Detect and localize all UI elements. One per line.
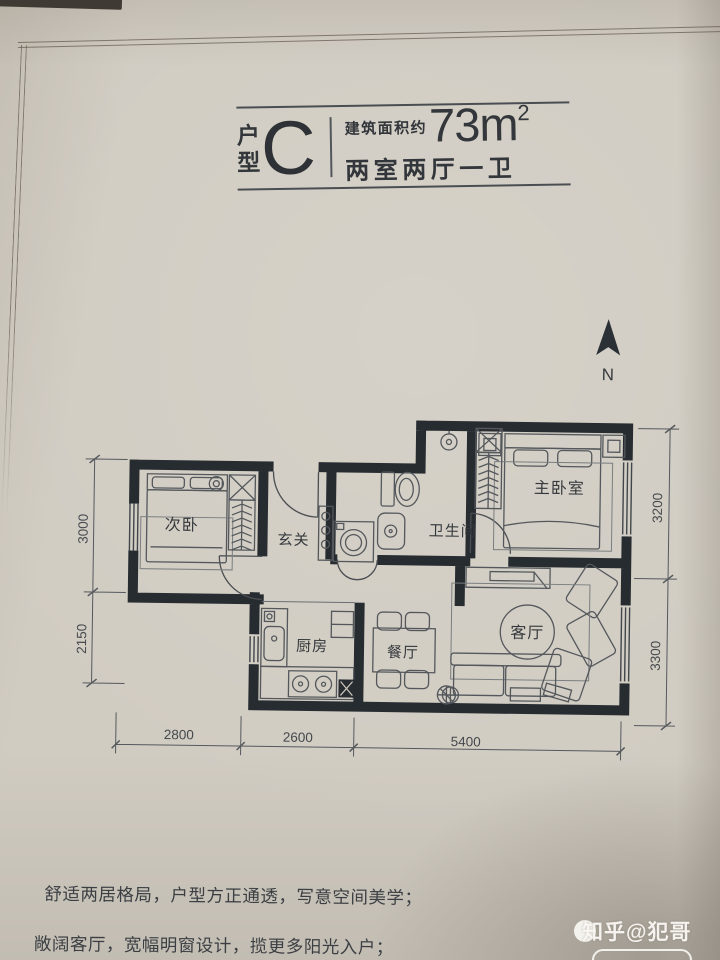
dim-bottom-3: 5400 xyxy=(451,734,481,749)
room-labels: 次卧 玄关 卫生间 主卧室 厨房 餐厅 客厅 xyxy=(163,474,585,664)
side-lamp-icon xyxy=(437,686,455,704)
room-label-foyer: 玄关 xyxy=(277,532,309,549)
stove xyxy=(288,671,336,698)
nightstand-right xyxy=(603,435,625,457)
armchair xyxy=(565,563,619,619)
room-label-bathroom: 卫生间 xyxy=(429,523,477,541)
tv-cabinet xyxy=(466,567,550,588)
room-label-living: 客厅 xyxy=(510,624,544,642)
dim-bottom-1: 2800 xyxy=(164,727,194,742)
watermark-pill xyxy=(592,949,692,960)
room-label-kitchen: 厨房 xyxy=(296,638,328,655)
north-label: N xyxy=(602,365,615,384)
dim-right-upper: 3200 xyxy=(650,493,665,523)
bathroom-sink xyxy=(377,513,405,549)
dim-right-lower: 3300 xyxy=(648,641,663,671)
washing-machine xyxy=(333,521,374,562)
watermark-text: 知乎@犯哥 xyxy=(582,916,691,946)
marketing-notes: 舒适两居格局，户型方正通透，写意空间美学； 敞阔客厅，宽幅明窗设计，揽更多阳光入… xyxy=(43,881,644,960)
floor-drain xyxy=(338,679,354,697)
dim-bottom-2: 2600 xyxy=(283,730,313,745)
note-line-1: 舒适两居格局，户型方正通透，写意空间美学； xyxy=(44,881,644,912)
kitchen-sink xyxy=(264,626,284,660)
master-bed xyxy=(505,434,601,449)
dim-left-lower: 2150 xyxy=(74,624,89,654)
floor-plan: 次卧 玄关 卫生间 主卧室 厨房 餐厅 客厅 3000 2150 xyxy=(0,0,720,960)
room-label-secondary-bedroom: 次卧 xyxy=(165,516,199,534)
master-rug xyxy=(493,462,612,552)
north-arrow-icon xyxy=(596,319,621,355)
room-label-master-bedroom: 主卧室 xyxy=(534,479,585,498)
bathroom-fixtures xyxy=(318,429,457,563)
north-compass: N xyxy=(596,319,621,384)
tv xyxy=(490,572,534,582)
room-label-dining: 餐厅 xyxy=(387,644,419,661)
entry-door xyxy=(273,472,319,518)
coffee-table xyxy=(510,688,540,701)
note-line-2: 敞阔客厅，宽幅明窗设计，揽更多阳光入户； xyxy=(34,931,644,960)
brochure-photo: 户 型 C 建筑面积约 73m 2 两室两厅一卫 xyxy=(0,0,720,960)
kitchen-opening-line xyxy=(262,601,355,602)
dim-left-upper: 3000 xyxy=(75,514,90,544)
watermark: 知乎@犯哥 xyxy=(574,916,691,946)
toilet xyxy=(381,472,419,507)
